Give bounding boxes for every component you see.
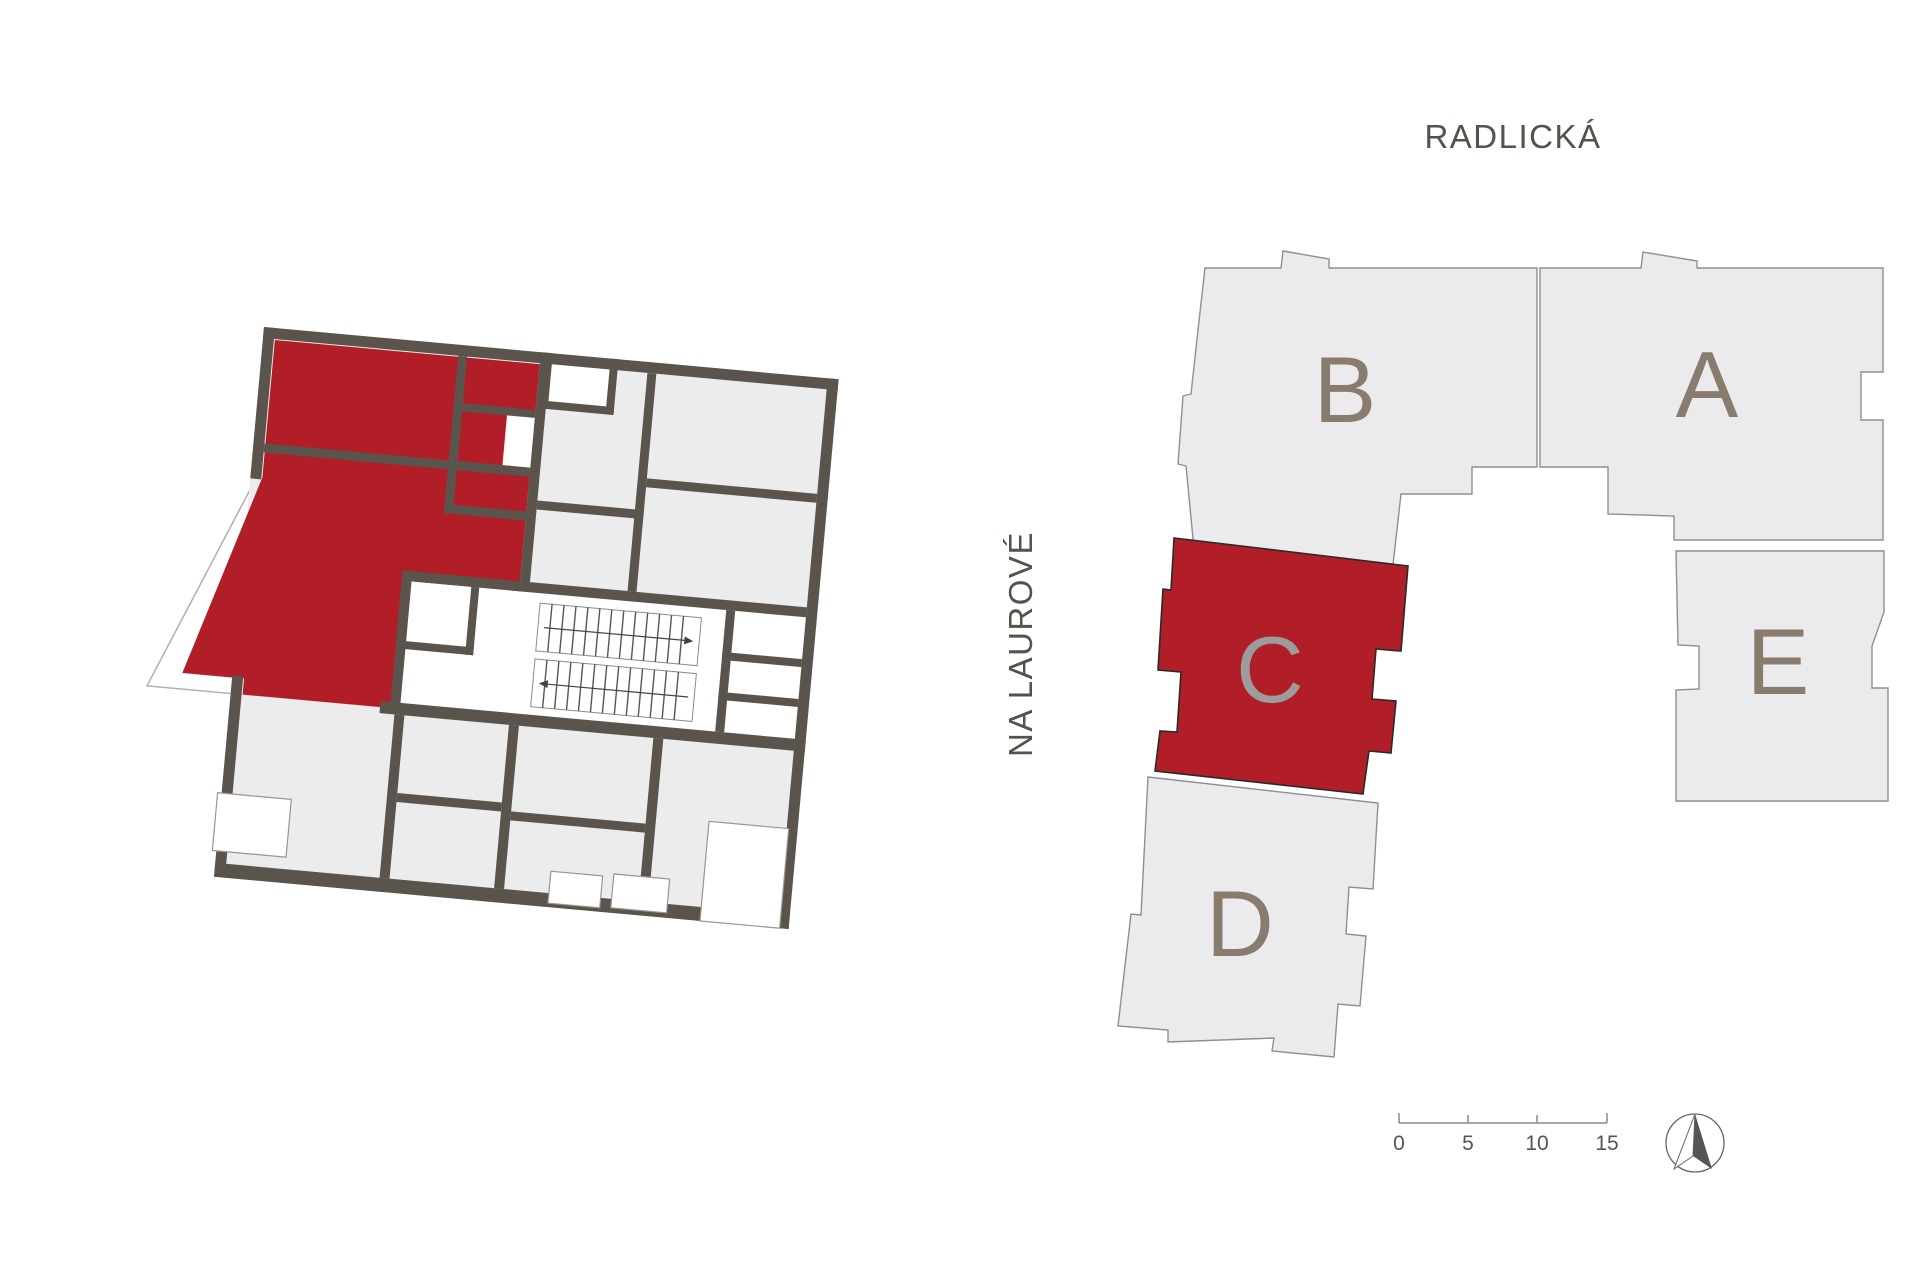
scale-bar-labels: 0 5 10 15 [1393, 1132, 1619, 1155]
building-c-label: C [1236, 617, 1304, 722]
entrance-recess [212, 793, 291, 857]
balcony-recess [611, 874, 670, 913]
scale-tick-0: 0 [1393, 1132, 1405, 1155]
scale-tick-15: 15 [1595, 1132, 1618, 1155]
building-d-label: D [1206, 871, 1274, 976]
elevator-niche [502, 413, 535, 467]
plan-canvas: B A C E D RADLICKÁ NA LAUROVÉ 0 5 10 15 [0, 0, 1912, 1280]
page: B A C E D RADLICKÁ NA LAUROVÉ 0 5 10 15 [0, 0, 1912, 1280]
balcony-recess [548, 871, 603, 908]
north-arrow-icon [1666, 1114, 1724, 1172]
terrace-recess [700, 821, 789, 928]
building-b-label: B [1314, 337, 1377, 442]
site-plan: B A C E D [1118, 251, 1888, 1057]
street-label-radlicka: RADLICKÁ [1424, 118, 1601, 155]
street-label-na-laurove: NA LAUROVÉ [1002, 531, 1039, 757]
scale-tick-5: 5 [1462, 1132, 1474, 1155]
scale-bar [1399, 1113, 1607, 1123]
floor-plan [130, 319, 838, 929]
building-a-label: A [1676, 332, 1739, 437]
scale-tick-10: 10 [1525, 1132, 1548, 1155]
building-e-label: E [1747, 609, 1810, 714]
